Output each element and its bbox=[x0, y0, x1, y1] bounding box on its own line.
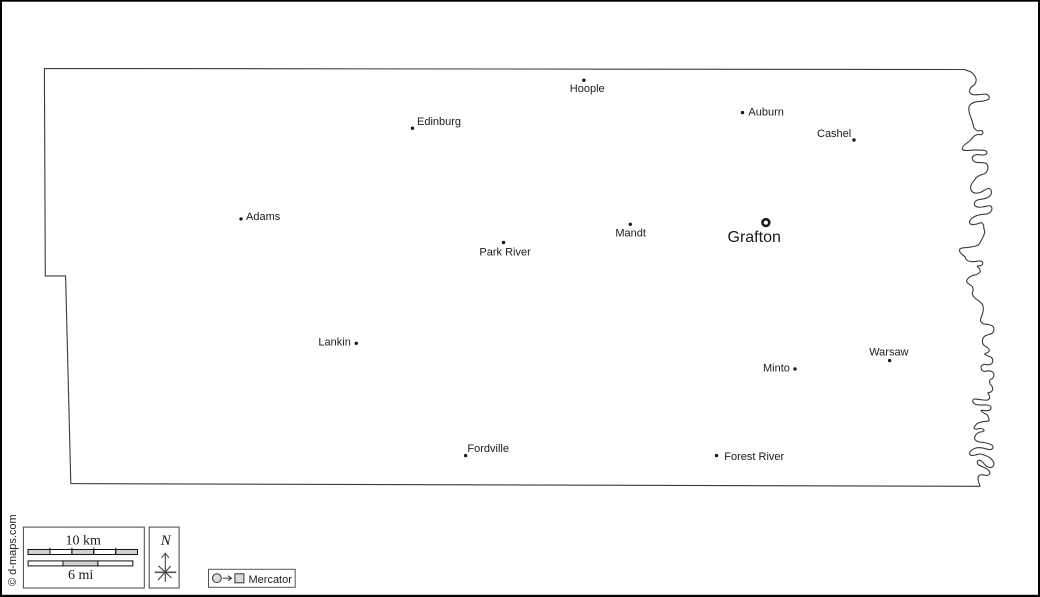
svg-text:© d-maps.com: © d-maps.com bbox=[7, 514, 19, 586]
svg-text:Cashel: Cashel bbox=[817, 128, 851, 140]
svg-text:Auburn: Auburn bbox=[748, 106, 783, 118]
svg-text:Mandt: Mandt bbox=[615, 228, 646, 240]
svg-text:Lankin: Lankin bbox=[318, 337, 350, 349]
svg-text:Fordville: Fordville bbox=[467, 443, 509, 455]
svg-text:Adams: Adams bbox=[246, 211, 281, 223]
svg-text:Park River: Park River bbox=[479, 247, 531, 259]
svg-text:N: N bbox=[160, 533, 172, 549]
svg-text:Minto: Minto bbox=[763, 362, 790, 374]
svg-text:6 mi: 6 mi bbox=[68, 568, 93, 583]
svg-text:Hoople: Hoople bbox=[570, 83, 605, 95]
svg-text:Warsaw: Warsaw bbox=[869, 346, 908, 358]
svg-text:Forest River: Forest River bbox=[724, 451, 784, 463]
svg-text:10 km: 10 km bbox=[66, 533, 102, 548]
svg-text:Edinburg: Edinburg bbox=[417, 116, 461, 128]
svg-text:Mercator: Mercator bbox=[249, 574, 293, 586]
svg-text:Grafton: Grafton bbox=[728, 229, 781, 246]
